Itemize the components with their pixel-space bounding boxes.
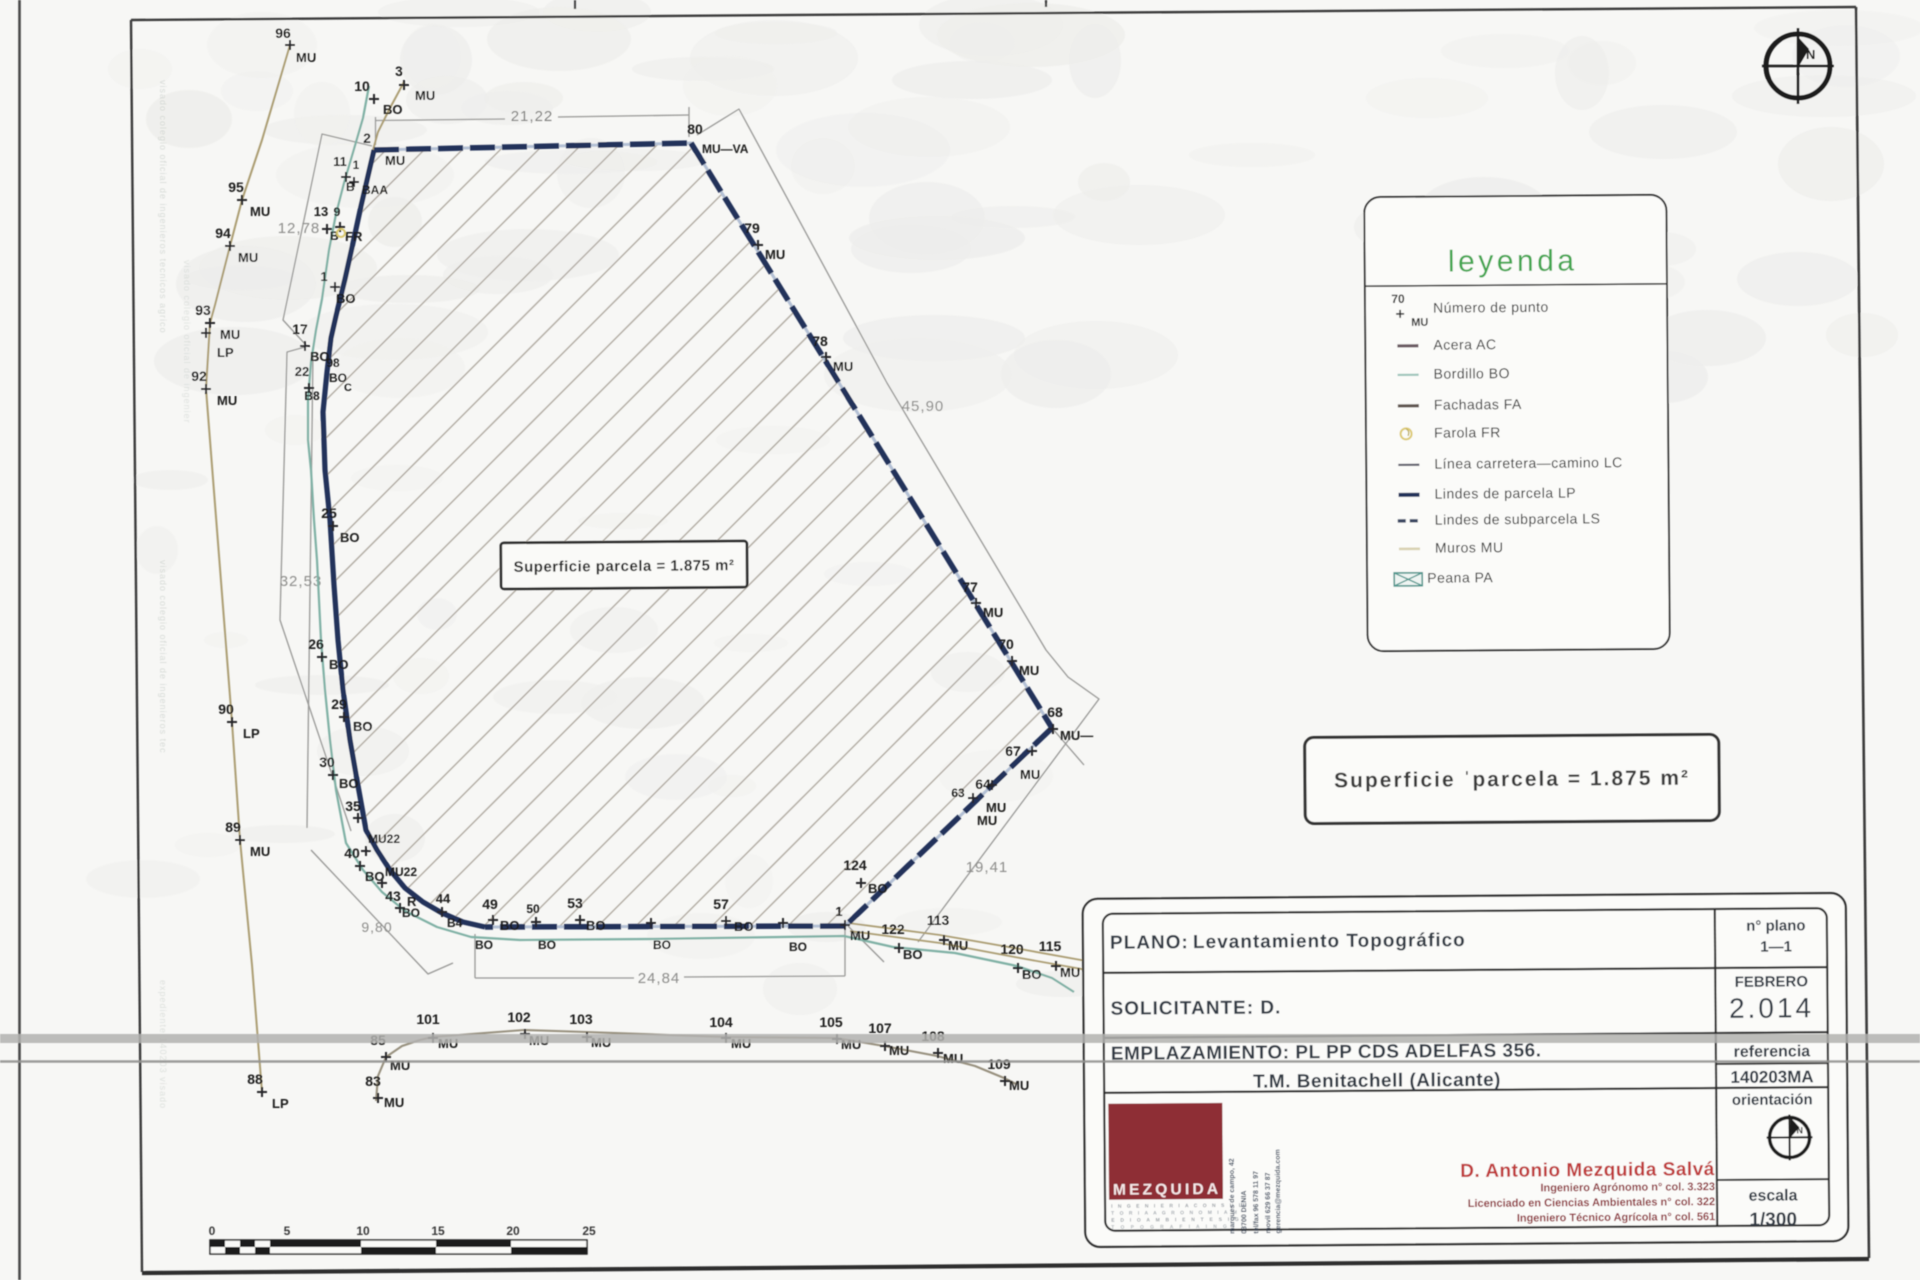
svg-text:FEBRERO: FEBRERO	[1735, 973, 1809, 991]
svg-text:89: 89	[225, 819, 241, 835]
svg-text:2.014: 2.014	[1729, 992, 1814, 1024]
svg-text:MU: MU	[220, 327, 240, 342]
svg-text:T O R I A A G R O N O M I A: T O R I A A G R O N O M I A M	[1111, 1210, 1239, 1217]
svg-text:Número de punto: Número de punto	[1433, 299, 1549, 316]
svg-text:Peana PA: Peana PA	[1427, 569, 1493, 586]
svg-text:BO: BO	[383, 102, 403, 117]
svg-text:n° plano: n° plano	[1746, 917, 1805, 934]
svg-text:MU: MU	[1020, 767, 1040, 782]
svg-text:78: 78	[812, 333, 828, 349]
svg-text:1: 1	[320, 269, 327, 284]
svg-text:115: 115	[1039, 938, 1062, 954]
svg-text:9: 9	[334, 205, 341, 219]
svg-text:MU: MU	[983, 605, 1003, 620]
svg-text:BAA: BAA	[362, 183, 388, 197]
svg-text:43: 43	[385, 888, 401, 904]
svg-text:77: 77	[962, 579, 978, 595]
svg-text:95: 95	[228, 179, 244, 195]
svg-text:MEZQUIDA: MEZQUIDA	[1113, 1181, 1221, 1199]
svg-text:124: 124	[843, 857, 867, 873]
svg-text:Ingeniero Agrónomo n° col. 3.3: Ingeniero Agrónomo n° col. 3.323	[1540, 1181, 1715, 1194]
svg-text:D. Antonio Mezquida Salvá: D. Antonio Mezquida Salvá	[1460, 1159, 1715, 1182]
svg-text:MU: MU	[415, 88, 435, 103]
svg-text:96: 96	[275, 25, 291, 41]
svg-text:120: 120	[1000, 941, 1024, 957]
svg-text:BO: BO	[1022, 967, 1042, 982]
svg-text:MU22: MU22	[385, 865, 417, 879]
svg-text:1: 1	[353, 158, 360, 172]
svg-text:visado colegio oficial de inge: visado colegio oficial de ingenier	[182, 260, 192, 424]
svg-text:MU: MU	[889, 1043, 909, 1058]
svg-text:BO: BO	[653, 938, 671, 952]
svg-text:26: 26	[308, 636, 324, 652]
svg-text:expediente 140203 visado: expediente 140203 visado	[158, 980, 168, 1109]
svg-text:MU: MU	[977, 813, 997, 828]
svg-text:Levantamiento Topográfico: Levantamiento Topográfico	[1193, 930, 1466, 953]
svg-text:24,84: 24,84	[638, 970, 681, 987]
svg-text:BO: BO	[339, 776, 359, 791]
svg-text:T O P O G R A F I A I N G: T O P O G R A F I A I N G	[1111, 1224, 1229, 1231]
svg-text:BO: BO	[734, 919, 754, 934]
svg-text:30: 30	[319, 754, 335, 770]
svg-text:BO: BO	[402, 906, 420, 920]
svg-text:BO: BO	[789, 940, 807, 954]
svg-text:N: N	[1796, 1125, 1803, 1135]
svg-text:marques de campo, 42: marques de campo, 42	[1229, 1158, 1237, 1234]
svg-text:63: 63	[951, 786, 965, 800]
svg-text:B: B	[346, 180, 355, 194]
svg-text:83: 83	[365, 1073, 381, 1089]
svg-text:Farola FR: Farola FR	[1434, 424, 1501, 441]
svg-text:88: 88	[247, 1071, 263, 1087]
svg-text:21,22: 21,22	[511, 108, 554, 125]
svg-text:68: 68	[1047, 704, 1063, 720]
svg-text:Superficie parcela = 1.875: Superficie parcela = 1.875 m²	[514, 557, 735, 576]
svg-text:MU: MU	[250, 844, 270, 859]
svg-text:3: 3	[395, 63, 403, 79]
svg-text:113: 113	[927, 912, 950, 928]
svg-text:MU: MU	[833, 359, 853, 374]
svg-text:MU22: MU22	[368, 832, 400, 846]
svg-text:BO: BO	[329, 657, 349, 672]
svg-text:MU—: MU—	[1060, 728, 1093, 743]
svg-text:referencia: referencia	[1734, 1043, 1811, 1061]
svg-text:Acera AC: Acera AC	[1433, 336, 1496, 352]
svg-text:LP: LP	[272, 1096, 289, 1111]
svg-text:MU: MU	[1009, 1078, 1029, 1093]
svg-text:LP: LP	[217, 345, 234, 360]
svg-text:1: 1	[835, 904, 842, 919]
svg-text:visado colegio oficial de inge: visado colegio oficial de ingenieros tec…	[158, 80, 168, 334]
svg-text:32,53: 32,53	[280, 573, 323, 590]
svg-text:11: 11	[333, 154, 347, 169]
svg-text:BO: BO	[868, 881, 888, 896]
svg-text:MU: MU	[1060, 965, 1080, 980]
svg-text:Bordillo BO: Bordillo BO	[1434, 365, 1510, 382]
svg-text:MU: MU	[943, 1051, 963, 1066]
svg-text:MU: MU	[385, 153, 405, 168]
svg-text:MU: MU	[250, 204, 270, 219]
svg-text:94: 94	[215, 225, 231, 241]
svg-text:movil 629 66 37 87: movil 629 66 37 87	[1265, 1172, 1272, 1233]
svg-text:80: 80	[687, 121, 703, 137]
svg-text:orientación: orientación	[1732, 1091, 1813, 1109]
svg-text:122: 122	[881, 921, 905, 937]
svg-text:140203MA: 140203MA	[1730, 1067, 1813, 1087]
svg-text:93: 93	[195, 302, 211, 318]
svg-text:MU: MU	[217, 393, 237, 408]
svg-text:92: 92	[191, 368, 207, 384]
svg-text:49: 49	[482, 896, 498, 912]
svg-text:Superficie ˈparcela = 1.875: Superficie ˈparcela = 1.875 m²	[1334, 767, 1690, 793]
svg-text:10: 10	[354, 78, 370, 94]
svg-text:10: 10	[356, 1224, 370, 1238]
svg-text:45,90: 45,90	[902, 398, 945, 415]
svg-text:13: 13	[314, 204, 328, 219]
svg-text:Fachadas FA: Fachadas FA	[1434, 396, 1522, 413]
svg-text:102: 102	[507, 1009, 531, 1025]
svg-text:5: 5	[284, 1224, 291, 1238]
svg-text:MU: MU	[238, 250, 258, 265]
svg-text:BO: BO	[340, 530, 360, 545]
svg-text:25: 25	[582, 1224, 596, 1238]
svg-text:B4: B4	[447, 916, 463, 930]
svg-text:19,41: 19,41	[966, 859, 1009, 876]
svg-text:MU: MU	[948, 938, 968, 953]
svg-text:MU: MU	[765, 247, 785, 262]
svg-text:103: 103	[569, 1011, 593, 1027]
svg-text:I N G E N I E R I A C O N S: I N G E N I E R I A C O N S U L	[1111, 1203, 1244, 1210]
svg-text:MU: MU	[296, 50, 316, 65]
svg-text:gerencia@mezquida.com: gerencia@mezquida.com	[1275, 1149, 1283, 1233]
svg-text:50: 50	[526, 902, 540, 916]
svg-text:BO: BO	[586, 918, 606, 933]
svg-text:109: 109	[987, 1056, 1011, 1072]
svg-text:BO: BO	[353, 719, 373, 734]
svg-text:N: N	[1806, 47, 1815, 62]
svg-text:Línea carretera—camino LC: Línea carretera—camino LC	[1434, 454, 1622, 471]
svg-text:BO: BO	[903, 947, 923, 962]
svg-text:E D I O A M B I E N T E S I: E D I O A M B I E N T E S I G	[1111, 1217, 1241, 1224]
svg-text:visado colegio oficial de inge: visado colegio oficial de ingenieros tec	[158, 560, 168, 754]
svg-text:79: 79	[744, 220, 760, 236]
svg-text:03700 DENIA: 03700 DENIA	[1241, 1191, 1248, 1234]
svg-text:29: 29	[331, 696, 347, 712]
svg-text:PLANO:: PLANO:	[1110, 932, 1189, 954]
svg-text:57: 57	[713, 896, 729, 912]
svg-text:12,78: 12,78	[278, 220, 321, 237]
svg-text:107: 107	[868, 1020, 892, 1036]
svg-text:0: 0	[209, 1224, 216, 1238]
svg-text:105: 105	[819, 1014, 843, 1030]
svg-text:90: 90	[218, 701, 234, 717]
svg-text:40: 40	[344, 845, 360, 861]
svg-text:Muros MU: Muros MU	[1435, 539, 1504, 556]
svg-text:LP: LP	[243, 726, 260, 741]
svg-text:53: 53	[567, 895, 583, 911]
svg-text:22: 22	[295, 364, 309, 379]
svg-text:SOLICITANTE: D.: SOLICITANTE: D.	[1110, 997, 1281, 1019]
svg-text:leyenda: leyenda	[1448, 245, 1578, 279]
svg-text:104: 104	[709, 1014, 733, 1030]
svg-text:BO: BO	[336, 291, 356, 306]
svg-text:MU—VA: MU—VA	[702, 142, 749, 156]
svg-text:tel/fax 96 578 11 97: tel/fax 96 578 11 97	[1253, 1171, 1260, 1234]
svg-text:Ingeniero Técnico Agrícola n°: Ingeniero Técnico Agrícola n° col. 561	[1517, 1211, 1715, 1225]
svg-text:101: 101	[416, 1011, 440, 1027]
svg-text:B8: B8	[304, 389, 320, 403]
svg-text:67: 67	[1005, 743, 1021, 759]
svg-text:Lindes de subparcela LS: Lindes de subparcela LS	[1435, 510, 1601, 527]
svg-text:2: 2	[363, 130, 371, 146]
svg-text:25: 25	[321, 505, 337, 521]
svg-text:64: 64	[975, 776, 991, 792]
svg-text:15: 15	[431, 1224, 445, 1238]
svg-text:BO: BO	[500, 918, 520, 933]
svg-text:MU: MU	[1411, 317, 1428, 329]
svg-text:9,80: 9,80	[361, 919, 392, 935]
svg-text:70: 70	[998, 636, 1014, 652]
svg-text:FR: FR	[345, 229, 363, 244]
svg-text:Lindes de parcela LP: Lindes de parcela LP	[1434, 485, 1576, 502]
svg-text:escala: escala	[1748, 1187, 1797, 1204]
svg-text:MU: MU	[1019, 663, 1039, 678]
svg-text:70: 70	[1391, 292, 1405, 306]
svg-text:1—1: 1—1	[1760, 938, 1792, 955]
svg-text:BO: BO	[475, 938, 493, 952]
svg-text:44: 44	[436, 891, 451, 906]
svg-text:1/300: 1/300	[1749, 1209, 1797, 1230]
svg-text:C: C	[344, 382, 352, 394]
svg-text:35: 35	[345, 798, 361, 814]
svg-text:MU: MU	[850, 928, 870, 943]
svg-text:17: 17	[292, 321, 308, 337]
svg-text:98: 98	[326, 356, 340, 370]
svg-text:20: 20	[506, 1224, 520, 1238]
svg-text:MU: MU	[384, 1095, 404, 1110]
svg-text:BO: BO	[538, 938, 556, 952]
svg-text:Licenciado en Ciencias Ambient: Licenciado en Ciencias Ambientales n° co…	[1468, 1196, 1715, 1210]
svg-text:T.M. Benitachell (Alicante): T.M. Benitachell (Alicante)	[1253, 1070, 1501, 1093]
